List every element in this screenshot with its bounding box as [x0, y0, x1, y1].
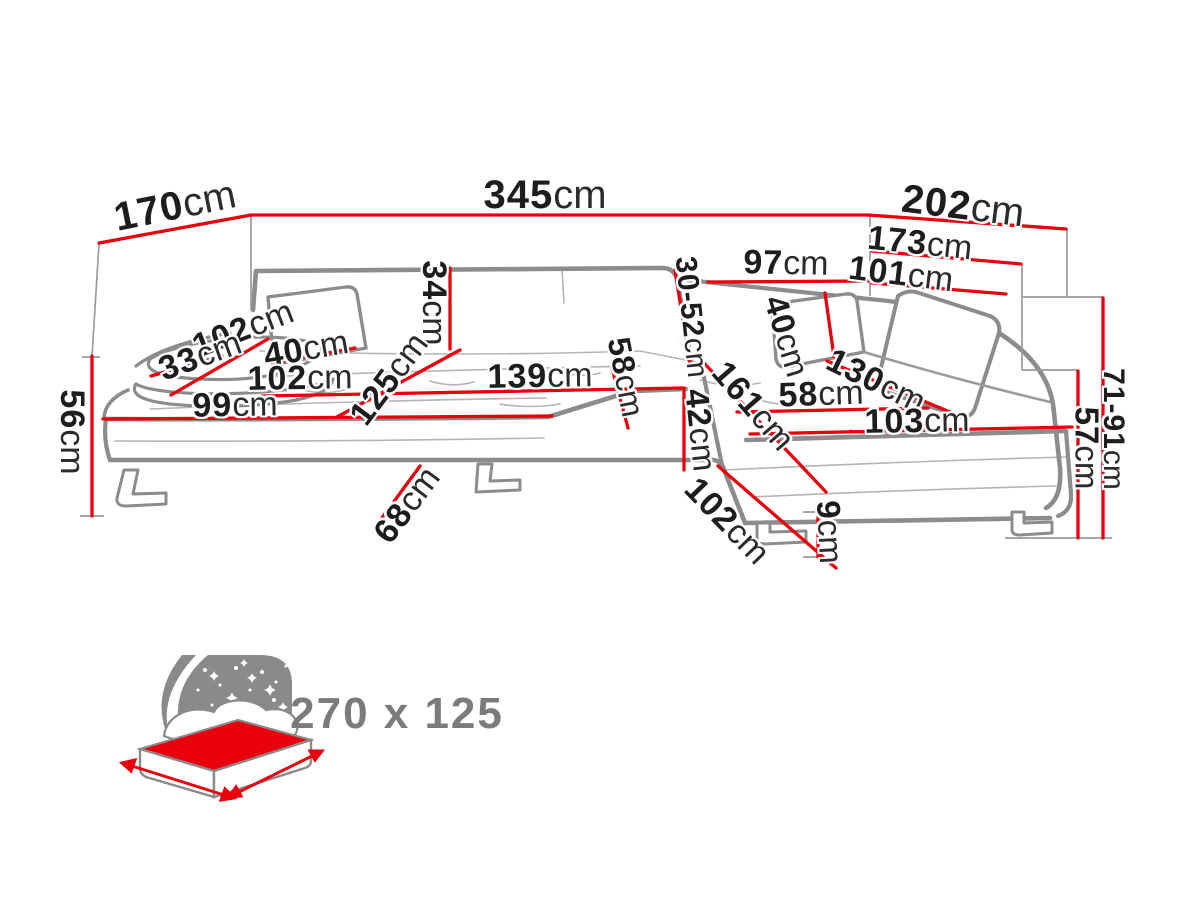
dim-unit: cm [1097, 450, 1130, 490]
dim-103: 103cm [864, 403, 970, 439]
dim-99: 99cm [192, 387, 278, 422]
dim-unit: cm [547, 356, 593, 395]
dim-unit: cm [906, 256, 956, 299]
dim-97: 97cm [743, 245, 829, 280]
dim-value: 9 [810, 499, 848, 520]
dim-unit: cm [677, 336, 714, 379]
dim-42: 42cm [680, 387, 721, 473]
dim-value: 97 [743, 243, 783, 282]
dim-value: 34 [415, 260, 453, 300]
dim-345: 345cm [483, 175, 606, 215]
dim-71-91: 71-91cm [1098, 368, 1128, 490]
dim-unit: cm [553, 173, 606, 217]
dim-unit: cm [968, 185, 1026, 235]
dim-56: 56cm [55, 389, 89, 474]
dim-value: 42 [678, 387, 719, 429]
dim-value: 56 [53, 389, 91, 429]
dim-value: 103 [864, 402, 924, 441]
dim-9: 9cm [812, 500, 848, 565]
dim-value: 202 [899, 177, 974, 229]
dim-unit: cm [307, 358, 353, 397]
dim-unit: cm [682, 425, 723, 473]
dim-unit: cm [811, 519, 850, 565]
dim-value: 99 [192, 386, 232, 425]
dim-unit: cm [232, 385, 278, 424]
dim-unit: cm [783, 244, 829, 283]
dim-139: 139cm [487, 358, 593, 394]
dim-unit: cm [924, 401, 970, 440]
dim-34: 34cm [417, 260, 451, 345]
dim-unit: cm [53, 429, 91, 474]
dim-value: 58 [778, 375, 819, 414]
dim-value: 139 [487, 357, 547, 396]
sleeping-area-size-label: 270 x 125 [290, 692, 504, 736]
dim-value: 101 [847, 249, 911, 294]
dim-value: 71-91 [1097, 368, 1130, 450]
dim-value: 345 [483, 173, 553, 217]
sofa-dimension-diagram: 170cm 345cm 202cm 173cm 97cm 101cm 102cm… [0, 0, 1200, 900]
dim-unit: cm [608, 371, 651, 420]
diagram-canvas [0, 0, 1200, 900]
